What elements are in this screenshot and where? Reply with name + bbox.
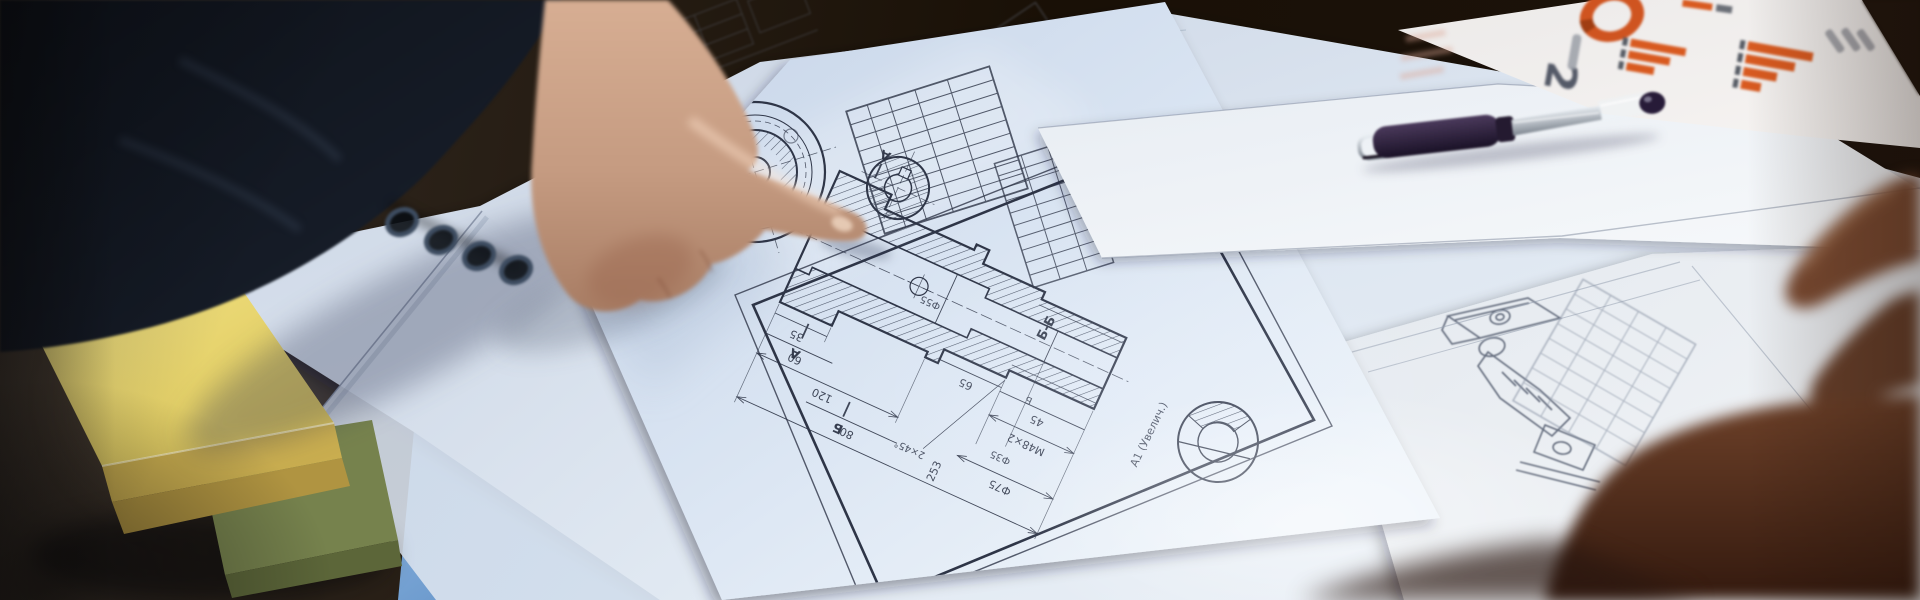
photo-scene: 35 60 120 80 253 45 65 M48×2 Ф75 Ф35 Ф55… — [0, 0, 1920, 600]
hands-layer — [0, 0, 1920, 600]
right-hand — [1545, 175, 1920, 600]
pointing-hand — [531, 0, 867, 319]
right-hand-finger — [1810, 290, 1920, 412]
right-hand-finger — [1786, 175, 1920, 308]
hand-and-index-finger — [531, 0, 867, 311]
